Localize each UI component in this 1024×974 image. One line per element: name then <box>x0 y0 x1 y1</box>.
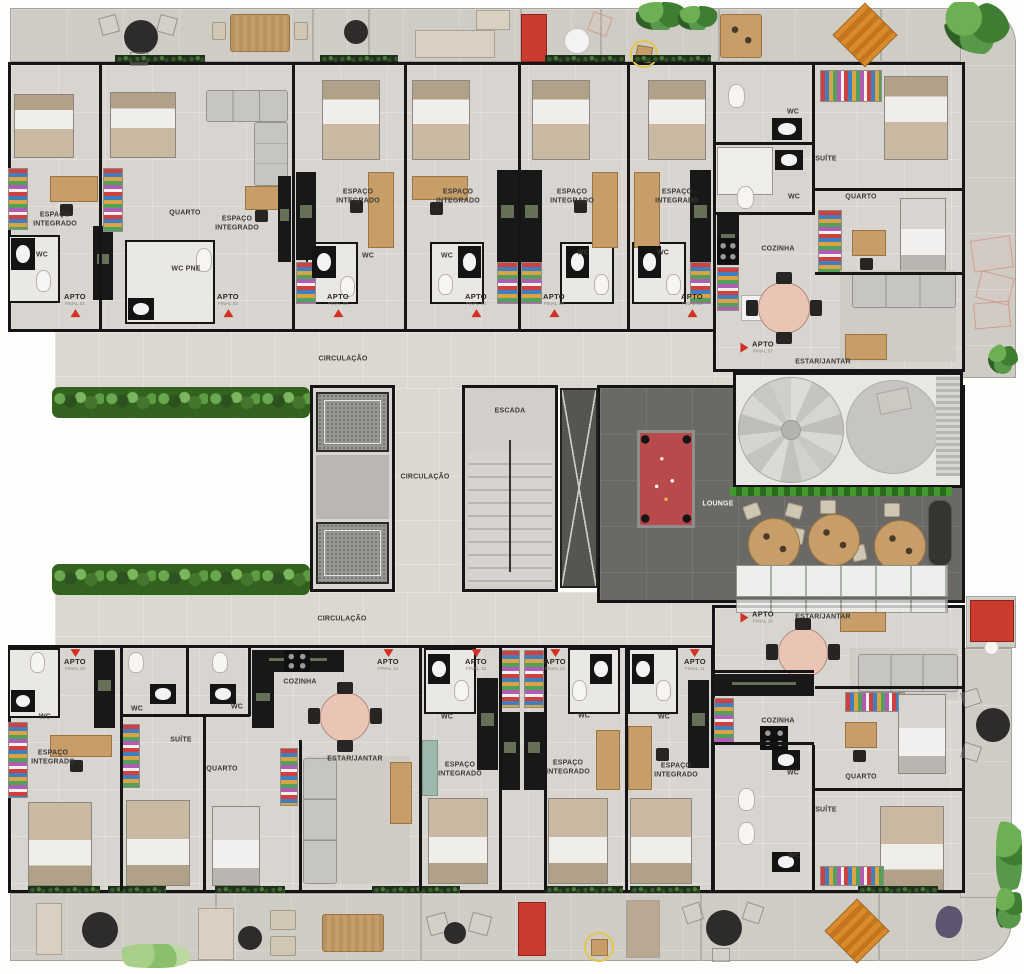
bathroom-vanity <box>775 150 803 170</box>
interior-wall <box>812 62 815 215</box>
room-label: WC <box>788 194 800 203</box>
double-bed <box>532 80 590 160</box>
kitchen-counter <box>688 680 709 768</box>
apto-label: APTOFINAL 15 <box>62 658 87 673</box>
entry-arrow-icon <box>690 649 700 657</box>
pantry-shelf <box>714 698 734 744</box>
lamp <box>984 640 999 655</box>
apto-label: APTOFINAL 11 <box>683 658 708 673</box>
patio-table <box>444 922 466 944</box>
interior-wall <box>715 212 813 215</box>
entry-arrow-icon <box>687 309 697 317</box>
balcony-partition <box>312 8 314 62</box>
apto-label: APTOFINAL 06 <box>679 293 704 308</box>
toilet <box>666 274 681 295</box>
interior-wall <box>715 142 813 145</box>
dining-chair <box>337 682 353 694</box>
room-label: COZINHA <box>761 718 794 727</box>
room-label: COZINHA <box>283 679 316 688</box>
entry-arrow-icon <box>333 309 343 317</box>
toilet <box>128 652 144 673</box>
double-bed <box>322 80 380 160</box>
floor-plan: ESPAÇO INTEGRADOWCQUARTOESPAÇO INTEGRADO… <box>0 0 1024 974</box>
toilet <box>738 788 755 811</box>
room-label: WC <box>231 704 243 713</box>
entry-arrow-icon <box>471 649 481 657</box>
room-label: SUÍTE <box>815 156 837 165</box>
kitchen-counter <box>497 170 518 262</box>
desk-chair <box>860 258 873 270</box>
pantry-shelf <box>500 650 520 708</box>
room-label: WC <box>131 706 143 715</box>
apto-entry-tag: APTOFINAL 03 <box>325 293 350 317</box>
double-bed <box>548 798 608 884</box>
dining-chair <box>766 644 778 660</box>
toilet <box>656 680 671 701</box>
bathroom-vanity <box>590 654 612 684</box>
room-label: ESPAÇO INTEGRADO <box>215 215 259 233</box>
interior-wall <box>815 788 962 791</box>
room-label: ESPAÇO INTEGRADO <box>550 188 594 206</box>
sofa <box>206 90 288 122</box>
lounge-hedge <box>730 487 952 496</box>
interior-wall <box>299 740 302 891</box>
room-label: WC <box>657 250 669 259</box>
room-label: ESTAR/JANTAR <box>327 756 382 765</box>
patio-chair <box>294 22 308 40</box>
elevator-cab-1 <box>316 392 389 452</box>
kitchen-counter <box>714 674 814 696</box>
desk <box>596 730 620 790</box>
corridor-top <box>55 332 740 390</box>
room-label: COZINHA <box>761 246 794 255</box>
bathroom-vanity <box>772 118 802 140</box>
dining-table <box>758 282 810 334</box>
toilet <box>594 274 609 295</box>
outdoor-dining-table <box>720 14 762 58</box>
kitchen-counter <box>94 650 115 728</box>
room-label: SUÍTE <box>170 737 192 746</box>
apto-label: APTOFINAL 14 <box>375 658 400 673</box>
window-planter <box>545 886 623 893</box>
entry-arrow-icon <box>549 309 559 317</box>
apto-label: APTOFINAL 02 <box>215 293 240 308</box>
interior-wall <box>815 272 962 275</box>
shag-rug <box>936 376 960 476</box>
planter-hedge-upper <box>52 387 310 418</box>
red-sofa <box>518 902 546 956</box>
room-label: WC <box>362 253 374 262</box>
interior-wall <box>815 188 962 191</box>
interior-wall <box>812 745 815 891</box>
wardrobe <box>122 724 140 788</box>
sketch-chair <box>973 300 1011 329</box>
apto-label: APTOFINAL 03 <box>325 293 350 308</box>
entry-arrow-icon <box>740 343 748 353</box>
desk <box>368 172 394 248</box>
bathroom-vanity <box>11 238 35 270</box>
bathroom-vanity <box>428 654 450 684</box>
apto-label: APTOFINAL 05 <box>541 293 566 308</box>
unit-wall <box>120 645 123 891</box>
entry-arrow-icon <box>471 309 481 317</box>
pool-table <box>637 430 695 528</box>
interior-wall <box>815 686 962 689</box>
sketch-sofa <box>970 235 1014 272</box>
pantry-shelf <box>717 267 739 311</box>
room-label: QUARTO <box>845 774 876 783</box>
room-label: WC <box>39 714 51 723</box>
corridor-vertical <box>395 388 462 595</box>
room-label: ESPAÇO INTEGRADO <box>655 188 699 206</box>
entry-arrow-icon <box>550 649 560 657</box>
bathroom-vanity <box>458 246 481 278</box>
lounge-table <box>748 518 800 570</box>
window-planter <box>320 55 398 62</box>
window-planter <box>630 886 700 893</box>
daybed <box>198 908 234 960</box>
apto-label: APTOFINAL 04 <box>463 293 488 308</box>
wardrobe <box>103 168 123 232</box>
lounger <box>476 10 510 30</box>
desk <box>628 726 652 790</box>
double-bed <box>880 806 944 890</box>
desk <box>845 722 877 748</box>
patio-table <box>564 28 590 54</box>
corner-plant <box>996 886 1022 930</box>
bathroom-vanity <box>11 690 35 712</box>
room-label: ESPAÇO INTEGRADO <box>436 188 480 206</box>
room-label: ESTAR/JANTAR <box>795 359 850 368</box>
interior-wall <box>714 742 814 745</box>
apto-entry-tag: APTOFINAL 02 <box>215 293 240 317</box>
apto-entry-tag: APTOFINAL 14 <box>375 649 400 673</box>
pantry-shelf <box>521 262 542 304</box>
pantry-shelf <box>524 650 544 708</box>
room-label: QUARTO <box>845 194 876 203</box>
dining-chair <box>776 332 792 344</box>
dining-chair <box>370 708 382 724</box>
room-label: SUÍTE <box>815 807 837 816</box>
room-label: WC <box>441 714 453 723</box>
dining-chair <box>746 300 758 316</box>
desk <box>852 230 886 256</box>
toilet <box>36 270 51 292</box>
desk-chair <box>656 748 669 761</box>
desk <box>592 172 618 248</box>
apto-entry-tag: APTOFINAL 07 <box>740 341 775 356</box>
toilet <box>738 822 755 845</box>
kitchen-counter <box>500 712 520 790</box>
wardrobe <box>8 168 28 230</box>
patio-chair <box>270 910 296 930</box>
balcony-partition <box>700 893 702 961</box>
apto-label: APTOFINAL 07 <box>750 341 775 356</box>
kitchen-counter <box>93 226 113 300</box>
room-label: QUARTO <box>206 766 237 775</box>
patio-table <box>82 912 118 948</box>
room-label: CIRCULAÇÃO <box>400 474 449 483</box>
stove <box>717 238 739 264</box>
double-bed <box>110 92 176 158</box>
wardrobe <box>818 210 842 274</box>
apto-entry-tag: APTOFINAL 01 <box>62 293 87 317</box>
dining-chair <box>337 740 353 752</box>
tv-bench <box>845 334 887 360</box>
wardrobe <box>8 722 28 798</box>
elevator-landing <box>316 455 389 519</box>
red-bench <box>970 600 1014 642</box>
unit-wall <box>419 645 422 891</box>
room-label: ESPAÇO INTEGRADO <box>336 188 380 206</box>
apto-entry-tag: APTOFINAL 05 <box>541 293 566 317</box>
lounge-table <box>808 514 860 566</box>
desk <box>634 172 660 248</box>
entry-arrow-icon <box>740 613 748 623</box>
toilet <box>572 680 587 701</box>
kitchen-counter <box>690 170 711 262</box>
room-label: WC <box>658 714 670 723</box>
lounge-chair <box>820 500 836 514</box>
patio-table <box>124 20 158 54</box>
room-label: WC <box>36 252 48 261</box>
room-label: ESPAÇO INTEGRADO <box>31 749 75 767</box>
unit-wall <box>627 62 630 330</box>
room-label: ESPAÇO INTEGRADO <box>654 762 698 780</box>
apto-entry-tag: APTOFINAL 13 <box>463 649 488 673</box>
kitchen-counter <box>252 672 274 728</box>
toilet <box>454 680 469 701</box>
tv-bench <box>390 762 412 824</box>
wardrobe <box>820 70 882 102</box>
balcony-partition <box>368 8 370 62</box>
apto-label: APTOFINAL 13 <box>463 658 488 673</box>
plant <box>996 816 1022 894</box>
room-label: WC PNE <box>171 266 200 275</box>
kitchen-counter <box>521 170 542 262</box>
room-label: WC <box>787 770 799 779</box>
pantry-shelf <box>497 262 518 304</box>
interior-wall <box>248 648 251 716</box>
room-label: CIRCULAÇÃO <box>318 356 367 365</box>
lounger <box>36 903 62 955</box>
room-label: WC <box>787 109 799 118</box>
elevator-cab-2 <box>316 522 389 584</box>
kitchen-counter <box>278 176 291 262</box>
room-label: ESPAÇO INTEGRADO <box>546 759 590 777</box>
dining-chair <box>776 272 792 284</box>
dining-chair <box>828 644 840 660</box>
double-bed <box>412 80 470 160</box>
plant <box>988 344 1018 374</box>
apto-entry-tag: APTOFINAL 12 <box>542 649 567 673</box>
room-label: WC <box>788 853 800 862</box>
toilet <box>30 652 45 673</box>
room-label: QUARTO <box>169 210 200 219</box>
window-planter <box>858 886 938 893</box>
interior-wall <box>186 648 189 716</box>
double-bed <box>630 798 692 884</box>
balcony-partition <box>420 893 422 961</box>
desk <box>50 176 98 202</box>
lounge-chair <box>884 503 900 517</box>
patio-table <box>238 926 262 950</box>
cabinet <box>422 740 438 796</box>
wardrobe <box>845 692 905 712</box>
red-sofa <box>521 14 547 62</box>
window-planter <box>215 886 285 893</box>
bathroom-vanity <box>632 654 654 684</box>
apto-entry-tag: APTOFINAL 06 <box>679 293 704 317</box>
dining-chair <box>308 708 320 724</box>
planter-hedge-lower <box>52 564 310 595</box>
daybed <box>415 30 495 58</box>
apto-entry-tag: APTOFINAL 15 <box>62 649 87 673</box>
room-label: LOUNGE <box>702 501 733 510</box>
wardrobe <box>820 866 884 886</box>
stove <box>760 726 788 750</box>
toilet <box>737 186 754 209</box>
double-bed <box>648 80 706 160</box>
interior-wall <box>203 717 206 891</box>
room-label: ESCADA <box>495 408 526 417</box>
kitchen-counter <box>477 678 498 770</box>
unit-wall <box>499 645 502 891</box>
room-label: ESPAÇO INTEGRADO <box>33 211 77 229</box>
sofa <box>303 758 337 884</box>
window-planter <box>372 886 460 893</box>
unit-wall <box>99 62 102 330</box>
patio-chair <box>712 948 730 962</box>
entry-arrow-icon <box>70 309 80 317</box>
interior-wall <box>714 670 814 673</box>
unit-wall <box>404 62 407 330</box>
window-planter <box>545 55 625 62</box>
kitchen-counter <box>524 712 544 790</box>
unit-wall <box>518 62 521 330</box>
side-table <box>591 939 608 956</box>
elevator-shaft <box>560 388 598 588</box>
double-bed <box>428 798 488 884</box>
entry-arrow-icon <box>70 649 80 657</box>
interior-wall <box>122 714 250 717</box>
patio-table <box>976 708 1010 742</box>
dining-table <box>320 692 370 742</box>
stove <box>284 650 310 672</box>
window-planter <box>115 55 205 62</box>
apto-entry-tag: APTOFINAL 10 <box>740 611 775 626</box>
bathroom-vanity <box>772 750 800 770</box>
double-bed <box>884 76 948 160</box>
wardrobe <box>280 748 298 806</box>
room-label: WC <box>578 713 590 722</box>
double-lounger <box>928 500 952 566</box>
room-label: CIRCULAÇÃO <box>317 616 366 625</box>
bathroom-vanity <box>150 684 176 704</box>
bathroom-vanity <box>210 684 236 704</box>
patio-chair <box>270 936 296 956</box>
room-label: ESTAR/JANTAR <box>795 614 850 623</box>
bathroom-vanity <box>312 246 336 278</box>
apto-label: APTOFINAL 12 <box>542 658 567 673</box>
spiral-center <box>781 420 801 440</box>
outdoor-dining-table <box>322 914 384 952</box>
toilet <box>212 652 228 673</box>
plant <box>678 6 718 30</box>
window-planter <box>108 886 166 893</box>
daybed <box>626 900 660 958</box>
patio-table <box>344 20 368 44</box>
plant <box>116 944 190 968</box>
desk-chair <box>853 750 866 762</box>
double-bed <box>28 802 92 886</box>
entry-arrow-icon <box>383 649 393 657</box>
apto-label: APTOFINAL 01 <box>62 293 87 308</box>
double-bed <box>14 94 74 158</box>
room-label: ESPAÇO INTEGRADO <box>438 761 482 779</box>
sofa <box>852 272 956 308</box>
toilet <box>728 84 745 108</box>
bathroom-vanity <box>128 298 154 320</box>
single-bed <box>900 198 946 272</box>
window-planter <box>633 55 711 62</box>
booth-seating <box>736 565 948 597</box>
apto-label: APTOFINAL 10 <box>750 611 775 626</box>
apto-entry-tag: APTOFINAL 04 <box>463 293 488 317</box>
unit-wall <box>292 62 295 330</box>
patio-chair <box>212 22 226 40</box>
toilet <box>438 274 453 295</box>
unit-wall <box>625 645 628 891</box>
stair-guide-line <box>509 440 511 572</box>
patio-table <box>706 910 742 946</box>
window-planter <box>28 886 100 893</box>
outdoor-dining-table <box>230 14 290 52</box>
room-label: WC <box>441 253 453 262</box>
double-bed <box>126 800 190 886</box>
apto-entry-tag: APTOFINAL 11 <box>683 649 708 673</box>
single-bed <box>212 806 260 886</box>
single-bed <box>898 694 946 774</box>
dining-chair <box>810 300 822 316</box>
room-label: WC <box>577 250 589 259</box>
entry-arrow-icon <box>223 309 233 317</box>
